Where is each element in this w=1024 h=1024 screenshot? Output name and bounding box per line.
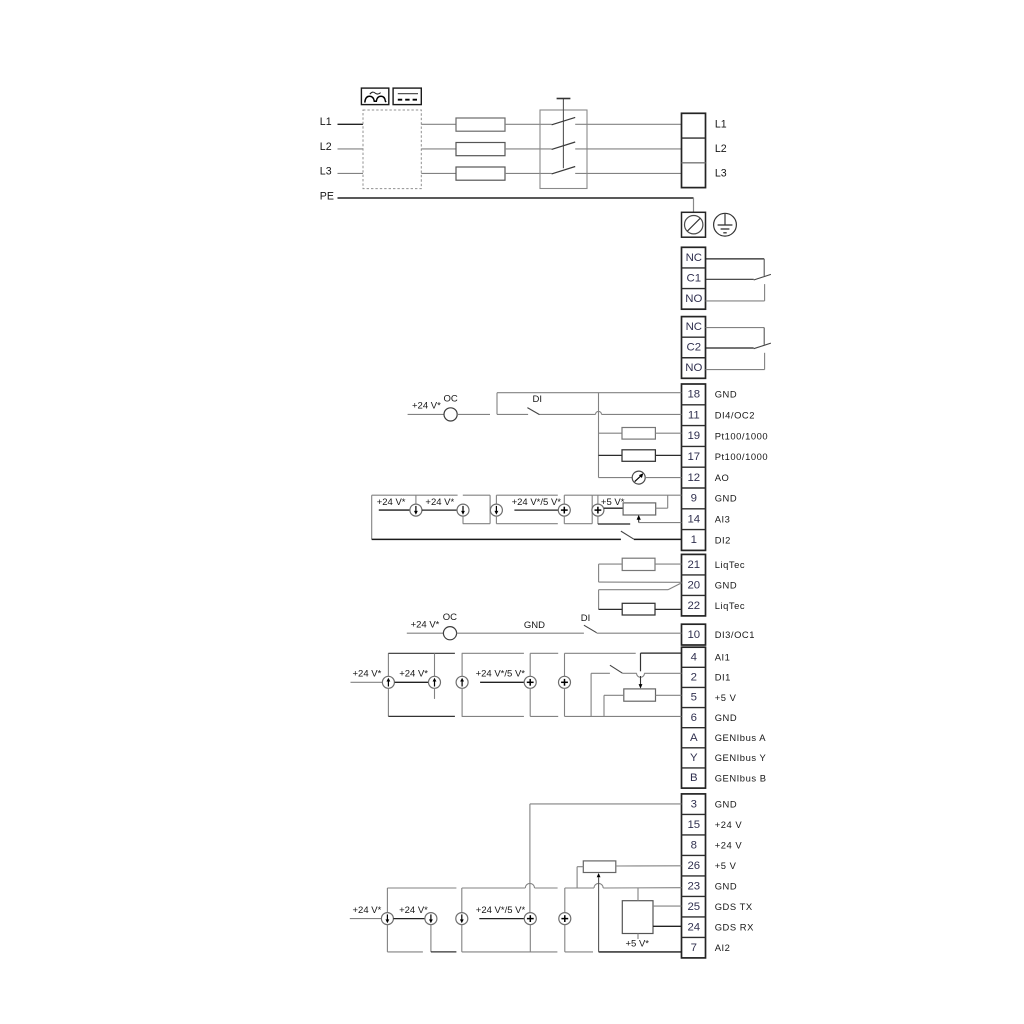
svg-text:9: 9 [691, 493, 697, 505]
svg-text:15: 15 [687, 819, 700, 831]
svg-text:L1: L1 [715, 119, 727, 131]
svg-text:GND: GND [715, 798, 737, 809]
svg-text:25: 25 [687, 901, 700, 913]
svg-text:6: 6 [691, 712, 697, 724]
svg-text:DI4/OC2: DI4/OC2 [715, 410, 755, 421]
svg-text:GND: GND [715, 389, 737, 400]
svg-text:NO: NO [685, 362, 702, 374]
svg-text:L3: L3 [715, 168, 727, 180]
svg-text:AO: AO [715, 472, 730, 483]
svg-text:L3: L3 [320, 165, 332, 177]
svg-text:GENIbus Y: GENIbus Y [715, 752, 767, 763]
svg-text:Y: Y [690, 752, 698, 764]
svg-text:DI2: DI2 [715, 534, 731, 545]
svg-text:C2: C2 [687, 342, 702, 354]
svg-text:L2: L2 [320, 141, 332, 153]
svg-text:+24 V: +24 V [715, 839, 743, 850]
svg-text:2: 2 [691, 672, 697, 684]
svg-text:B: B [690, 772, 698, 784]
svg-text:4: 4 [691, 652, 697, 664]
svg-text:PE: PE [320, 190, 334, 202]
svg-text:DI: DI [533, 394, 543, 405]
svg-text:+5 V*: +5 V* [626, 939, 650, 950]
svg-text:24: 24 [687, 921, 700, 933]
svg-text:26: 26 [687, 860, 700, 872]
svg-text:OC: OC [443, 612, 457, 623]
svg-text:+24 V*/5 V*: +24 V*/5 V* [476, 668, 526, 679]
svg-text:GDS TX: GDS TX [715, 901, 753, 912]
svg-text:20: 20 [687, 579, 700, 591]
svg-text:Pt100/1000: Pt100/1000 [715, 451, 768, 462]
svg-text:A: A [690, 732, 698, 744]
svg-text:Pt100/1000: Pt100/1000 [715, 430, 768, 441]
svg-text:AI1: AI1 [715, 652, 731, 663]
svg-text:23: 23 [687, 880, 700, 892]
svg-text:NO: NO [685, 293, 702, 305]
svg-text:GENIbus A: GENIbus A [715, 732, 767, 743]
svg-text:C1: C1 [687, 272, 702, 284]
svg-text:DI3/OC1: DI3/OC1 [715, 629, 755, 640]
svg-text:AI2: AI2 [715, 942, 731, 953]
svg-text:L1: L1 [320, 116, 332, 128]
svg-text:AI3: AI3 [715, 514, 731, 525]
svg-text:10: 10 [687, 629, 700, 641]
svg-text:NC: NC [686, 321, 702, 333]
svg-text:+5 V: +5 V [715, 692, 737, 703]
svg-text:14: 14 [687, 513, 700, 525]
svg-text:3: 3 [691, 798, 697, 810]
svg-text:17: 17 [687, 451, 700, 463]
svg-text:5: 5 [691, 692, 697, 704]
svg-text:+24 V*: +24 V* [377, 497, 406, 508]
svg-text:L2: L2 [715, 143, 727, 155]
svg-text:+24 V*: +24 V* [425, 497, 454, 508]
svg-text:+24 V*: +24 V* [353, 668, 382, 679]
svg-text:GND: GND [524, 620, 545, 631]
svg-text:22: 22 [687, 600, 700, 612]
svg-text:+24 V*/5 V*: +24 V*/5 V* [512, 497, 562, 508]
svg-text:21: 21 [687, 559, 700, 571]
svg-text:+24 V*: +24 V* [353, 905, 382, 916]
svg-text:GENIbus B: GENIbus B [715, 772, 767, 783]
svg-text:GND: GND [715, 712, 737, 723]
svg-text:1: 1 [691, 534, 697, 546]
svg-text:+24 V: +24 V [715, 819, 743, 830]
svg-text:GND: GND [715, 880, 737, 891]
svg-text:11: 11 [688, 409, 700, 421]
svg-text:NC: NC [686, 252, 702, 264]
svg-text:+5 V*: +5 V* [601, 497, 625, 508]
svg-text:OC: OC [444, 393, 458, 404]
svg-text:18: 18 [687, 389, 700, 401]
svg-text:+24 V*: +24 V* [399, 905, 428, 916]
svg-text:GND: GND [715, 579, 737, 590]
svg-text:+24 V*: +24 V* [411, 620, 440, 631]
svg-text:GDS RX: GDS RX [715, 921, 754, 932]
svg-text:12: 12 [687, 472, 700, 484]
svg-text:7: 7 [691, 942, 697, 954]
svg-text:GND: GND [715, 493, 737, 504]
svg-text:19: 19 [687, 430, 700, 442]
svg-text:DI: DI [581, 613, 591, 624]
svg-text:8: 8 [691, 839, 697, 851]
svg-text:LiqTec: LiqTec [715, 559, 745, 570]
svg-text:+24 V*: +24 V* [399, 668, 428, 679]
svg-text:DI1: DI1 [715, 672, 731, 683]
svg-text:LiqTec: LiqTec [715, 600, 745, 611]
svg-text:+5 V: +5 V [715, 860, 737, 871]
svg-text:+24 V*/5 V*: +24 V*/5 V* [476, 905, 526, 916]
svg-text:+24 V*: +24 V* [412, 401, 441, 412]
